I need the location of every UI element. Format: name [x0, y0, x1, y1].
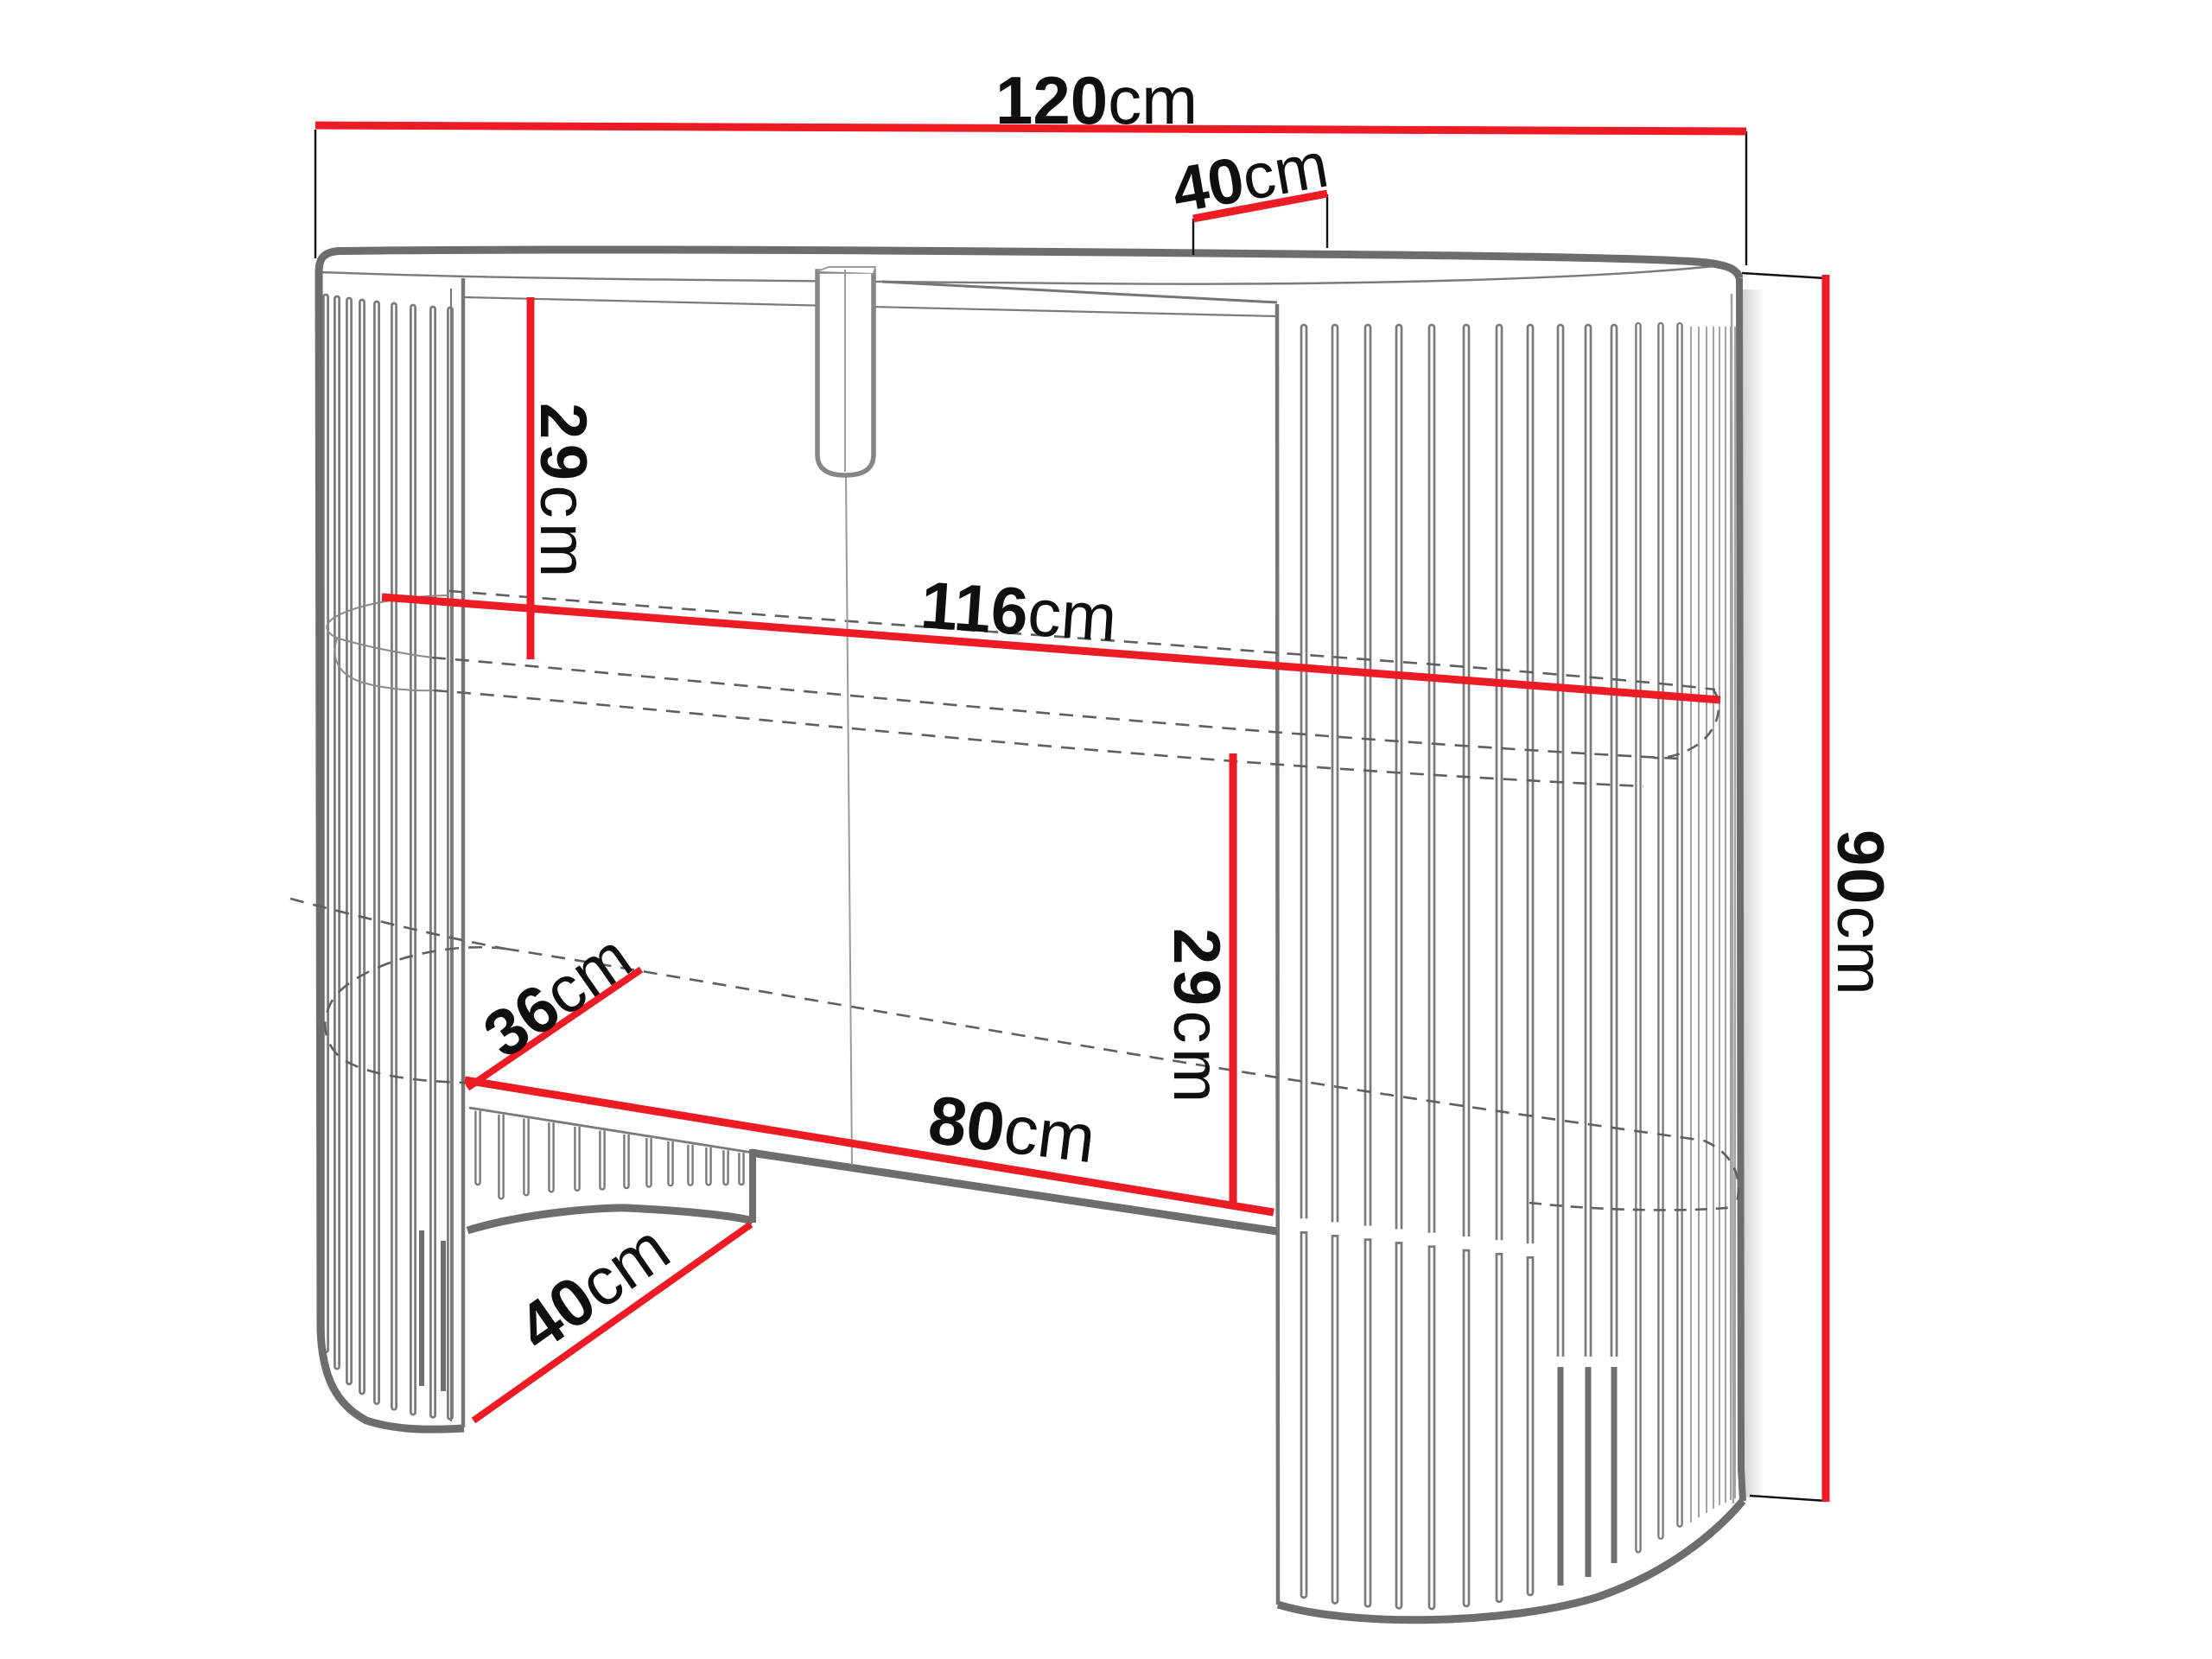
svg-text:90cm: 90cm [1823, 829, 1897, 997]
svg-text:116cm: 116cm [918, 568, 1119, 656]
svg-text:29cm: 29cm [526, 403, 600, 582]
svg-text:29cm: 29cm [1160, 928, 1233, 1108]
svg-text:120cm: 120cm [995, 62, 1198, 138]
